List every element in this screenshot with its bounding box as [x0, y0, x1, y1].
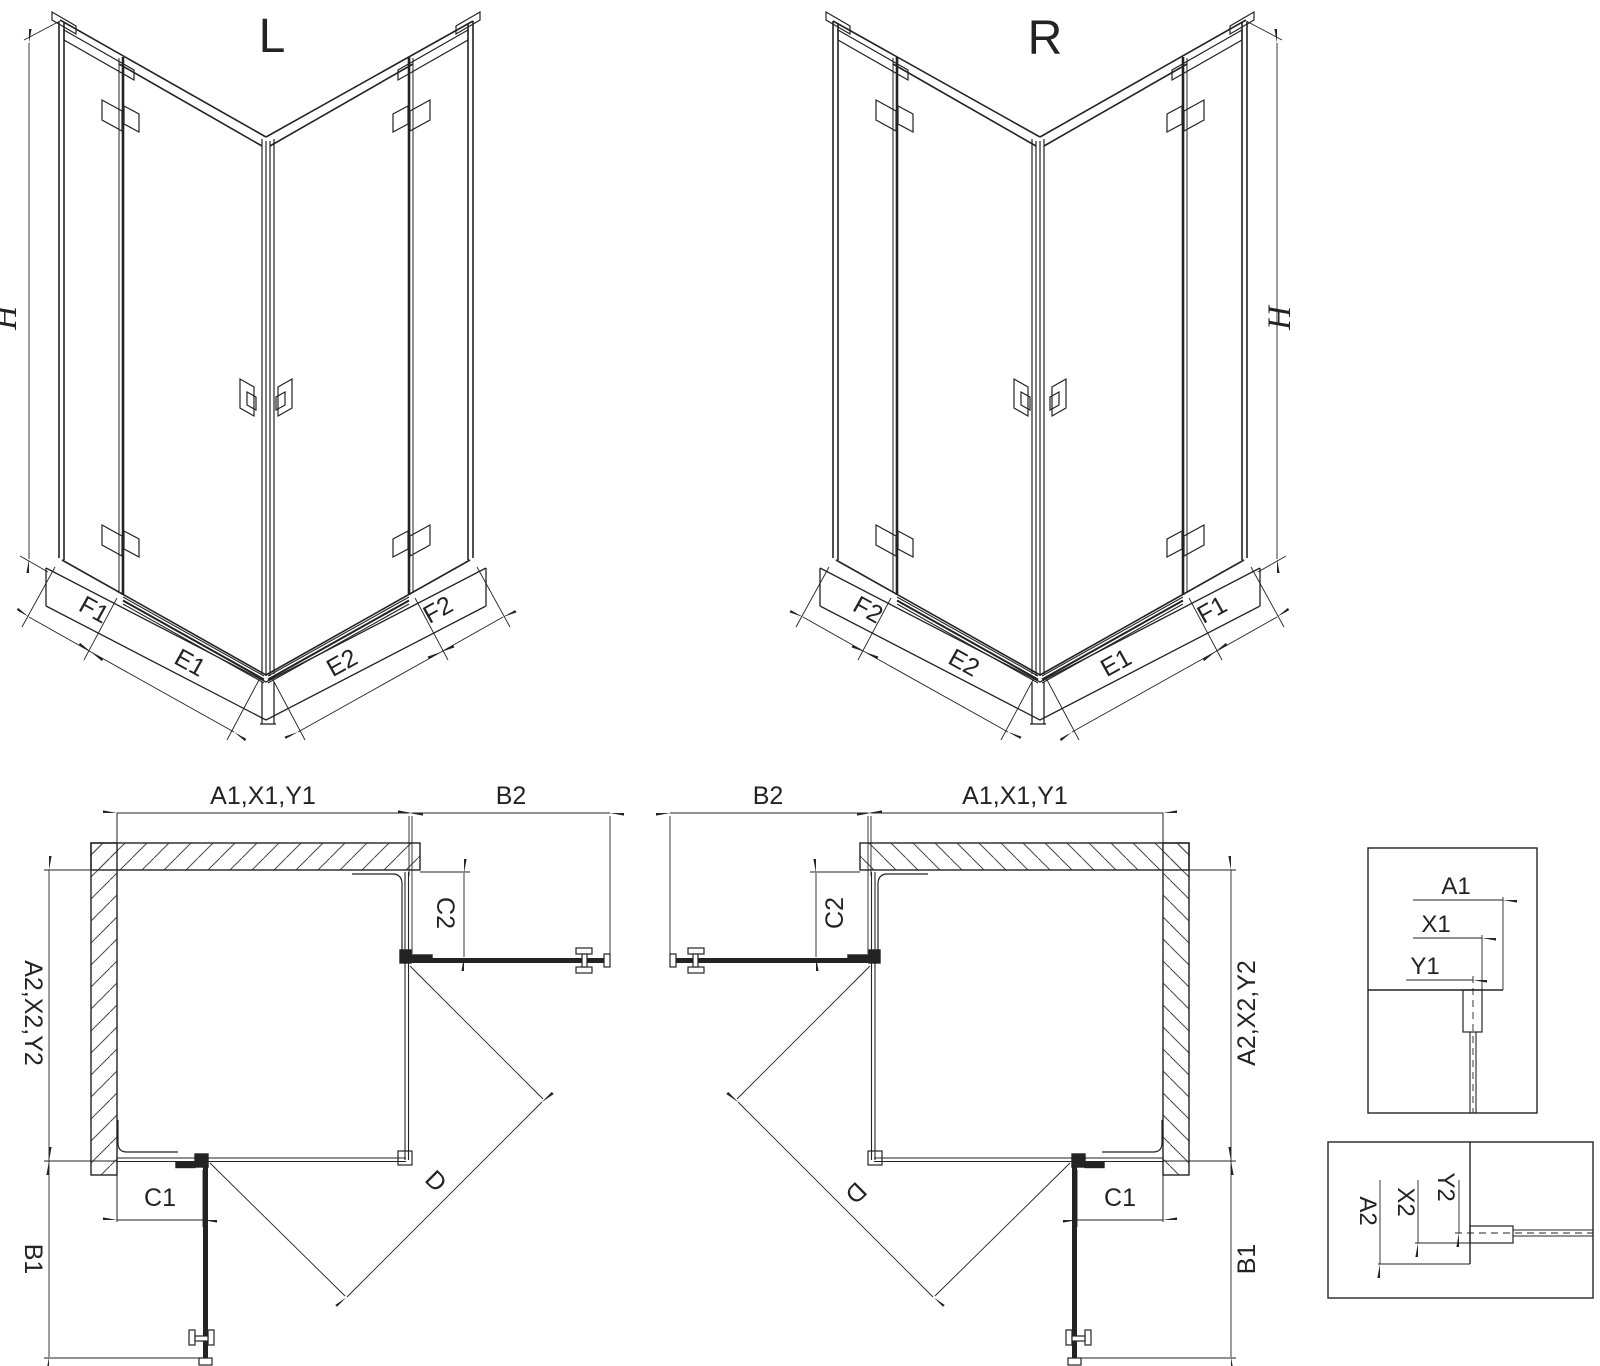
iso-right-height-label: H [1262, 304, 1298, 331]
detail-h-dim-x1: X1 [1421, 911, 1450, 938]
shower-enclosure-diagram: L H F1 E1 E2 F2 R H F2 E2 E1 F1 A1,X1,Y1… [0, 0, 1600, 1366]
plan-right-dim-a1x1y1: A1,X1,Y1 [962, 782, 1068, 810]
plan-left-dim-d: D [419, 1165, 452, 1198]
plan-right-dim-c1: C1 [1104, 1184, 1136, 1212]
plan-left-dim-b2: B2 [496, 782, 527, 810]
plan-right-dim-b1: B1 [1233, 1244, 1261, 1275]
plan-right-dim-c2: C2 [821, 897, 849, 929]
plan-view-right: B2 A1,X1,Y1 C2 A2,X2,Y2 B1 C1 D [670, 782, 1261, 1365]
plan-right-dim-a2x2y2: A2,X2,Y2 [1233, 960, 1261, 1066]
iso-left-height-label: H [0, 304, 24, 331]
iso-right-title: R [1028, 12, 1063, 65]
plan-left-dim-b1: B1 [19, 1244, 47, 1275]
detail-v-dim-a2: A2 [1354, 1196, 1381, 1225]
iso-view-left: L H F1 E1 E2 F2 [0, 10, 510, 740]
detail-v-dim-y2: Y2 [1432, 1172, 1459, 1201]
plan-view-left: A1,X1,Y1 B2 C2 A2,X2,Y2 B1 C1 D [19, 782, 610, 1365]
plan-left-dim-a1x1y1: A1,X1,Y1 [210, 782, 316, 810]
plan-left-dim-a2x2y2: A2,X2,Y2 [19, 960, 47, 1066]
technical-drawing-page: L H F1 E1 E2 F2 R H F2 E2 E1 F1 A1,X1,Y1… [0, 0, 1600, 1366]
plan-left-dim-c2: C2 [431, 897, 459, 929]
detail-v-dim-x2: X2 [1392, 1187, 1419, 1216]
detail-h-dim-a1: A1 [1441, 873, 1470, 900]
plan-right-dim-b2: B2 [753, 782, 784, 810]
detail-box-horizontal: A1 X1 Y1 [1368, 848, 1537, 1113]
detail-h-dim-y1: Y1 [1410, 953, 1439, 980]
plan-left-dim-c1: C1 [144, 1184, 176, 1212]
detail-box-vertical: A2 X2 Y2 [1328, 1142, 1593, 1298]
plan-right-dim-d: D [839, 1176, 872, 1209]
iso-left-title: L [259, 10, 286, 63]
iso-view-right: R H F2 E2 E1 F1 [796, 12, 1298, 740]
